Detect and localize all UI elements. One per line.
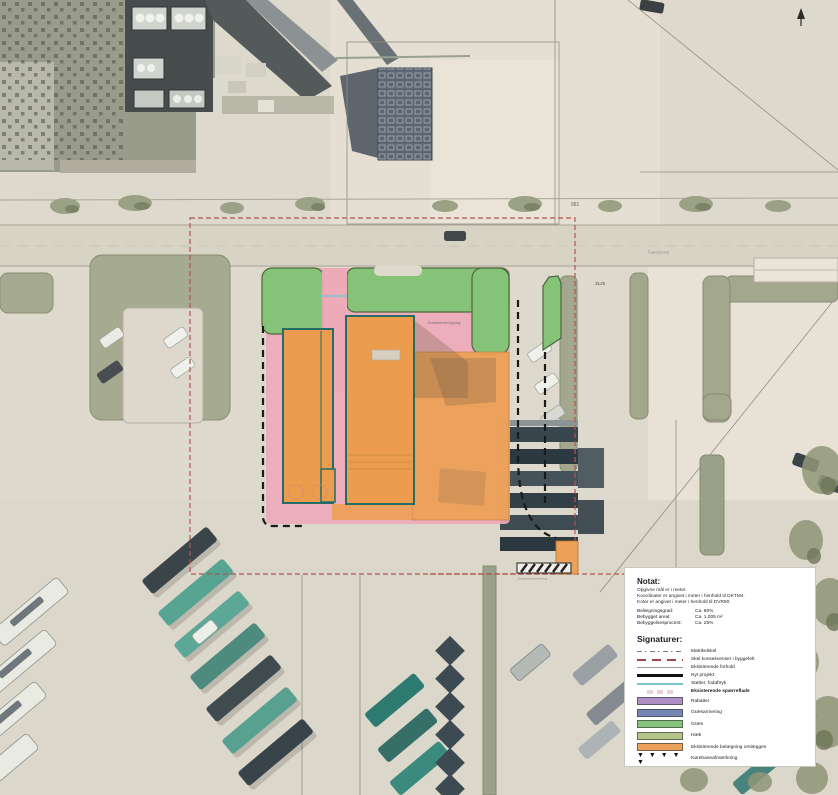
legend-label: Nyt projekt [691,673,714,678]
graes-swatch [637,720,683,728]
haek-swatch [637,732,683,740]
existing-line-symbol [637,667,683,668]
buildings [283,316,414,504]
graesarmering-swatch [637,709,683,717]
road-marking-symbol: ▼ ▼ ▼ ▼ ▼ [637,752,683,766]
stat-label: Bebyggelsesprocent: [637,621,695,627]
legend-label: Eksisterende belægning omlægges [691,745,766,750]
road-name-label: Færgevej [648,250,669,256]
legend-label: Kørebaneafmærkning [691,756,737,761]
legend-label: Matrikelskel [691,649,716,654]
skel-line-symbol [637,659,683,661]
legend-label: Hæk [691,733,701,738]
legend-title: Signaturer: [637,634,805,644]
road-number-label: 981 [571,202,580,208]
parcel-number-label: 3125 [595,281,606,286]
notat-title: Notat: [637,577,805,586]
new-project-line-symbol [637,674,683,677]
building-annotation: Eksisterende bygning [428,321,461,325]
notat-line: Koter er angivet i meter i henhold til D… [637,600,805,606]
legend-label: Skel konsekvenser i byggefelt [691,657,754,662]
legend-box: Notat: Opgivne mål er i meter. Koordinat… [624,567,816,767]
faded-area-symbol [647,690,673,694]
legend-label: Støtter, fodaftryk [691,681,726,686]
belaegning-swatch [637,743,683,751]
road-marking-caption: Kørebaneafmærkning [518,577,547,581]
site-plan-page: Færgevej 981 [0,0,838,795]
legend-label: Græs [691,722,703,727]
rabatter-swatch [637,697,683,705]
legend-label: Eksisterende spærreflade [691,689,750,694]
footprint-line-symbol [637,683,683,685]
stat-value: Ca. 25% [695,621,713,627]
grass-notch [374,265,422,276]
legend-label: Eksisterende forhold [691,665,735,670]
matrikelskel-line-symbol [637,651,683,652]
legend-label: Rabatter [691,699,709,704]
repaved-strip [332,504,412,520]
notat-stats: Belægningsgrad:Ca. 80% Bebygget areal:Ca… [637,609,805,628]
legend-label: Græsarmering [691,710,722,715]
